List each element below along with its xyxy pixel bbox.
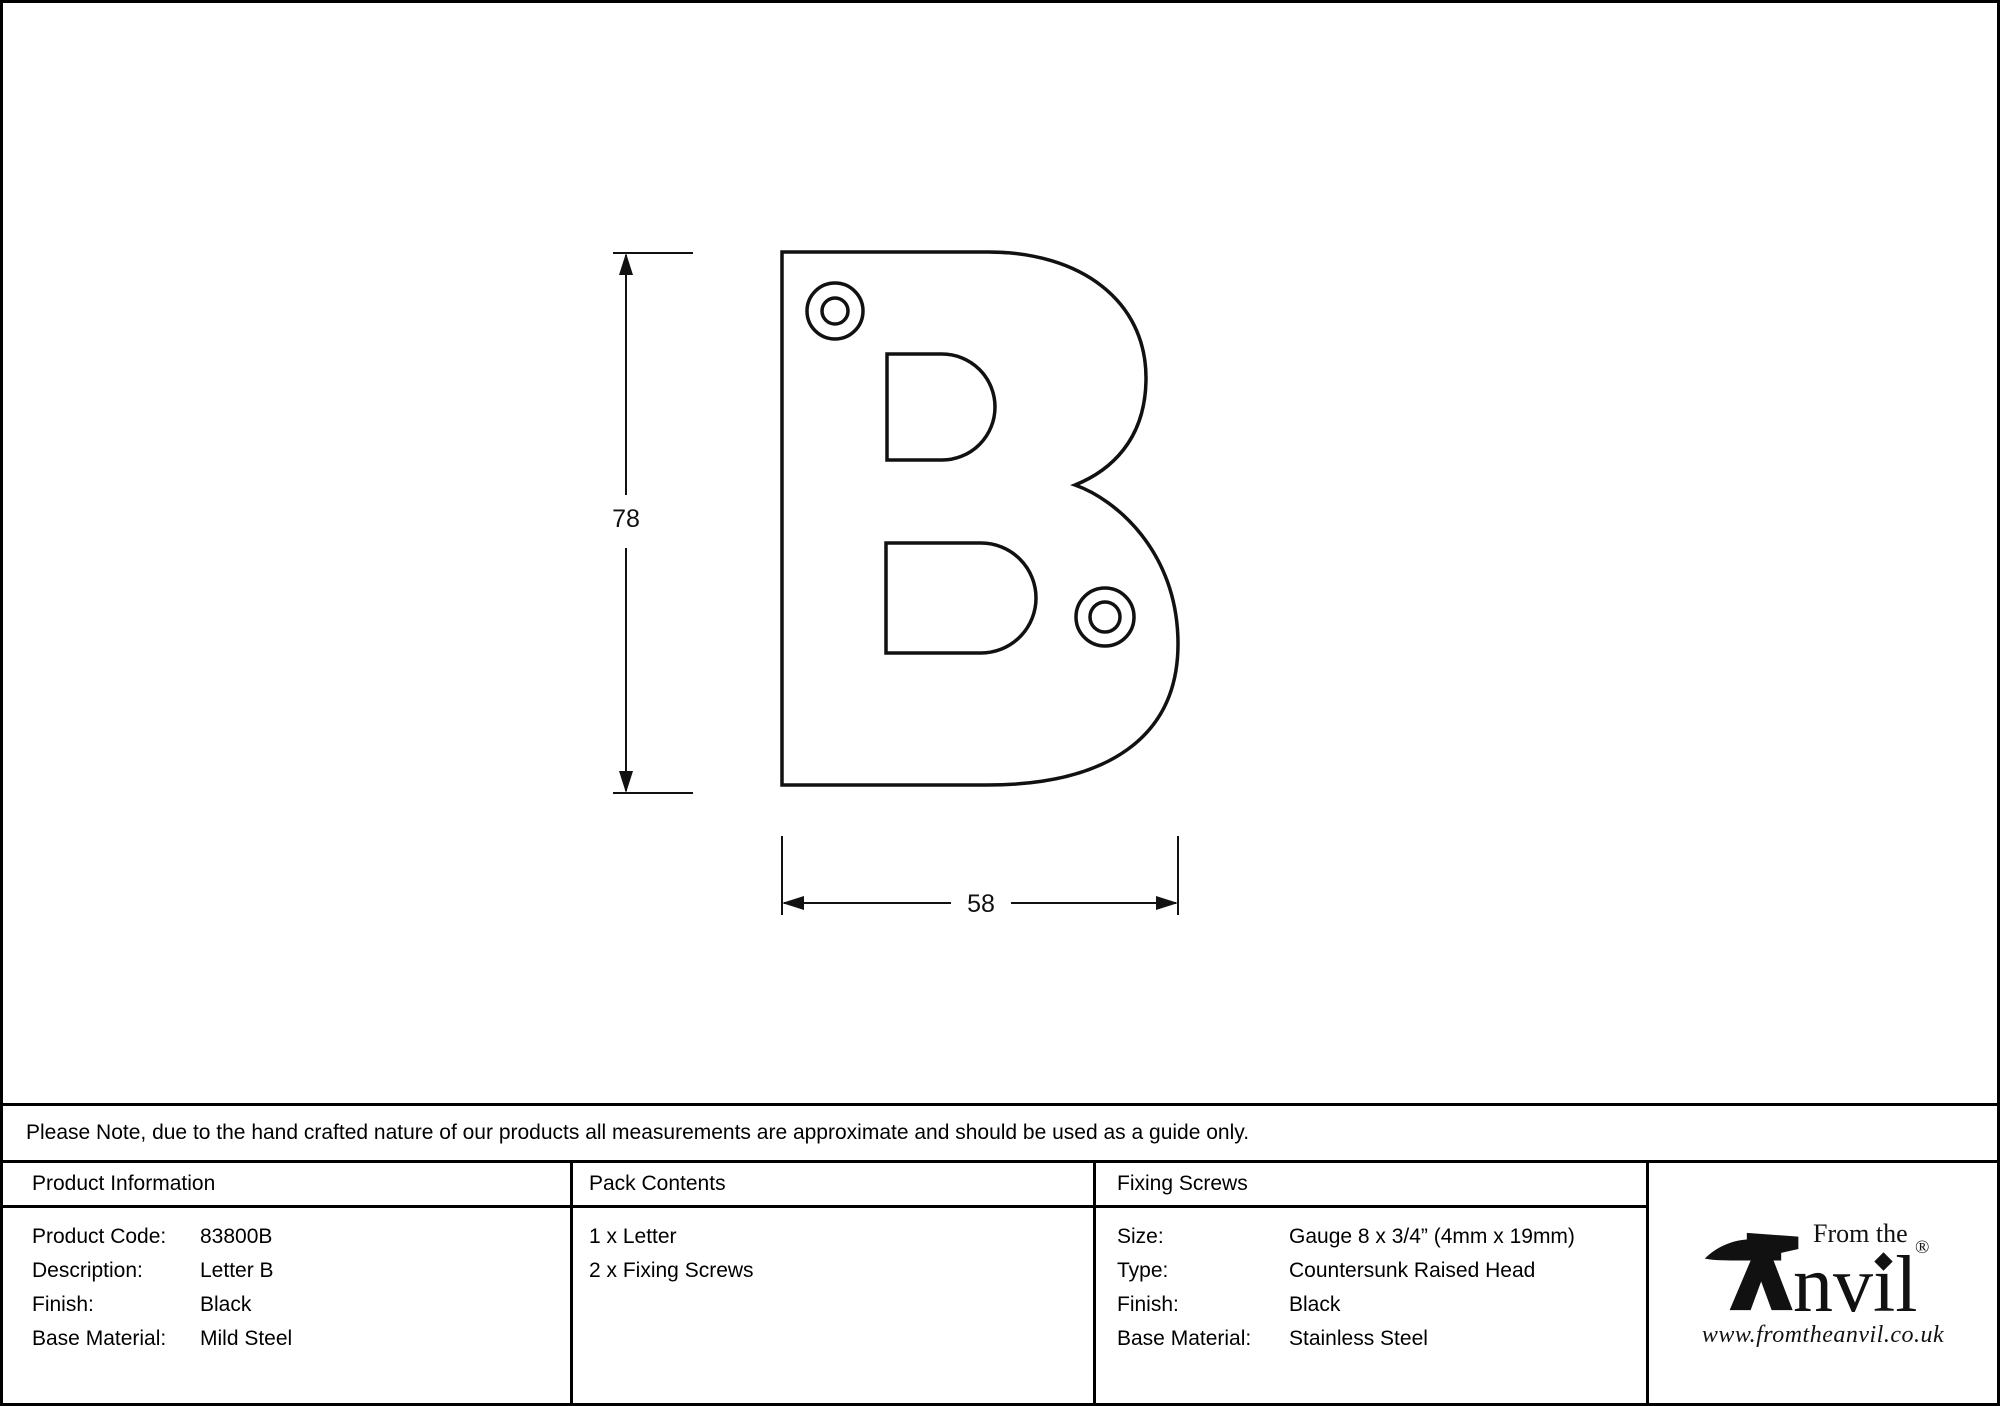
note-text: Please Note, due to the hand crafted nat… [26, 1121, 1249, 1145]
row-label: Finish: [32, 1288, 200, 1322]
table-row: Base Material: Stainless Steel [1117, 1322, 1646, 1356]
product-spec-sheet: 78 58 Please Note, due to the hand craft… [0, 0, 2000, 1406]
row-label: Type: [1117, 1254, 1289, 1288]
product-information-header: Product Information [3, 1163, 570, 1205]
screw-hole-bottom [1076, 588, 1134, 646]
table-row: Base Material: Mild Steel [32, 1322, 570, 1356]
row-label: Product Code: [32, 1220, 200, 1254]
from-the-anvil-logo: From the nvil ® www.fromtheanvil.co.uk [1701, 1217, 1945, 1349]
row-label: Base Material: [1117, 1322, 1289, 1356]
spec-table: Product Information Pack Contents Fixing… [3, 1160, 1997, 1403]
letter-b-top-counter [887, 354, 995, 460]
table-row: Type: Countersunk Raised Head [1117, 1254, 1646, 1288]
list-item: 1 x Letter [589, 1220, 1093, 1254]
width-dim-arrow-right [1156, 896, 1178, 910]
screw-hole-top [807, 283, 863, 339]
width-dimension-value: 58 [967, 890, 995, 918]
registered-trademark-icon: ® [1915, 1237, 1929, 1259]
fixing-screws-header: Fixing Screws [1093, 1163, 1646, 1205]
row-value: Mild Steel [200, 1322, 292, 1356]
row-label: Finish: [1117, 1288, 1289, 1322]
brand-name: nvil [1793, 1245, 1917, 1325]
row-label: Base Material: [32, 1322, 200, 1356]
table-row: Finish: Black [1117, 1288, 1646, 1322]
letter-b-drawing-svg: 78 58 [3, 3, 1997, 1103]
row-value: Black [1289, 1288, 1340, 1322]
fixing-screws-body: Size: Gauge 8 x 3/4” (4mm x 19mm) Type: … [1093, 1205, 1646, 1403]
width-dim-arrow-left [782, 896, 804, 910]
info-section: Please Note, due to the hand crafted nat… [3, 1103, 1997, 1403]
pack-contents-header: Pack Contents [570, 1163, 1093, 1205]
product-information-body: Product Code: 83800B Description: Letter… [3, 1205, 570, 1403]
row-label: Description: [32, 1254, 200, 1288]
list-item: 2 x Fixing Screws [589, 1254, 1093, 1288]
row-value: Black [200, 1288, 251, 1322]
letter-b-outline [782, 252, 1178, 785]
note-row: Please Note, due to the hand crafted nat… [3, 1106, 1997, 1160]
row-value: 83800B [200, 1220, 272, 1254]
height-dim-arrow-top [619, 253, 633, 275]
row-value: Gauge 8 x 3/4” (4mm x 19mm) [1289, 1220, 1575, 1254]
row-value: Stainless Steel [1289, 1322, 1428, 1356]
table-row: Finish: Black [32, 1288, 570, 1322]
height-dim-arrow-bottom [619, 771, 633, 793]
table-row: Product Code: 83800B [32, 1220, 570, 1254]
anvil-icon [1701, 1227, 1806, 1315]
table-row: Description: Letter B [32, 1254, 570, 1288]
brand-logo-cell: From the nvil ® www.fromtheanvil.co.uk [1646, 1163, 1997, 1403]
brand-website: www.fromtheanvil.co.uk [1701, 1322, 1945, 1349]
row-label: Size: [1117, 1220, 1289, 1254]
letter-b-bottom-counter [886, 543, 1036, 653]
height-dimension-value: 78 [612, 505, 640, 533]
technical-drawing: 78 58 [3, 3, 1997, 1103]
table-row: Size: Gauge 8 x 3/4” (4mm x 19mm) [1117, 1220, 1646, 1254]
pack-contents-body: 1 x Letter 2 x Fixing Screws [570, 1205, 1093, 1403]
row-value: Letter B [200, 1254, 274, 1288]
row-value: Countersunk Raised Head [1289, 1254, 1535, 1288]
